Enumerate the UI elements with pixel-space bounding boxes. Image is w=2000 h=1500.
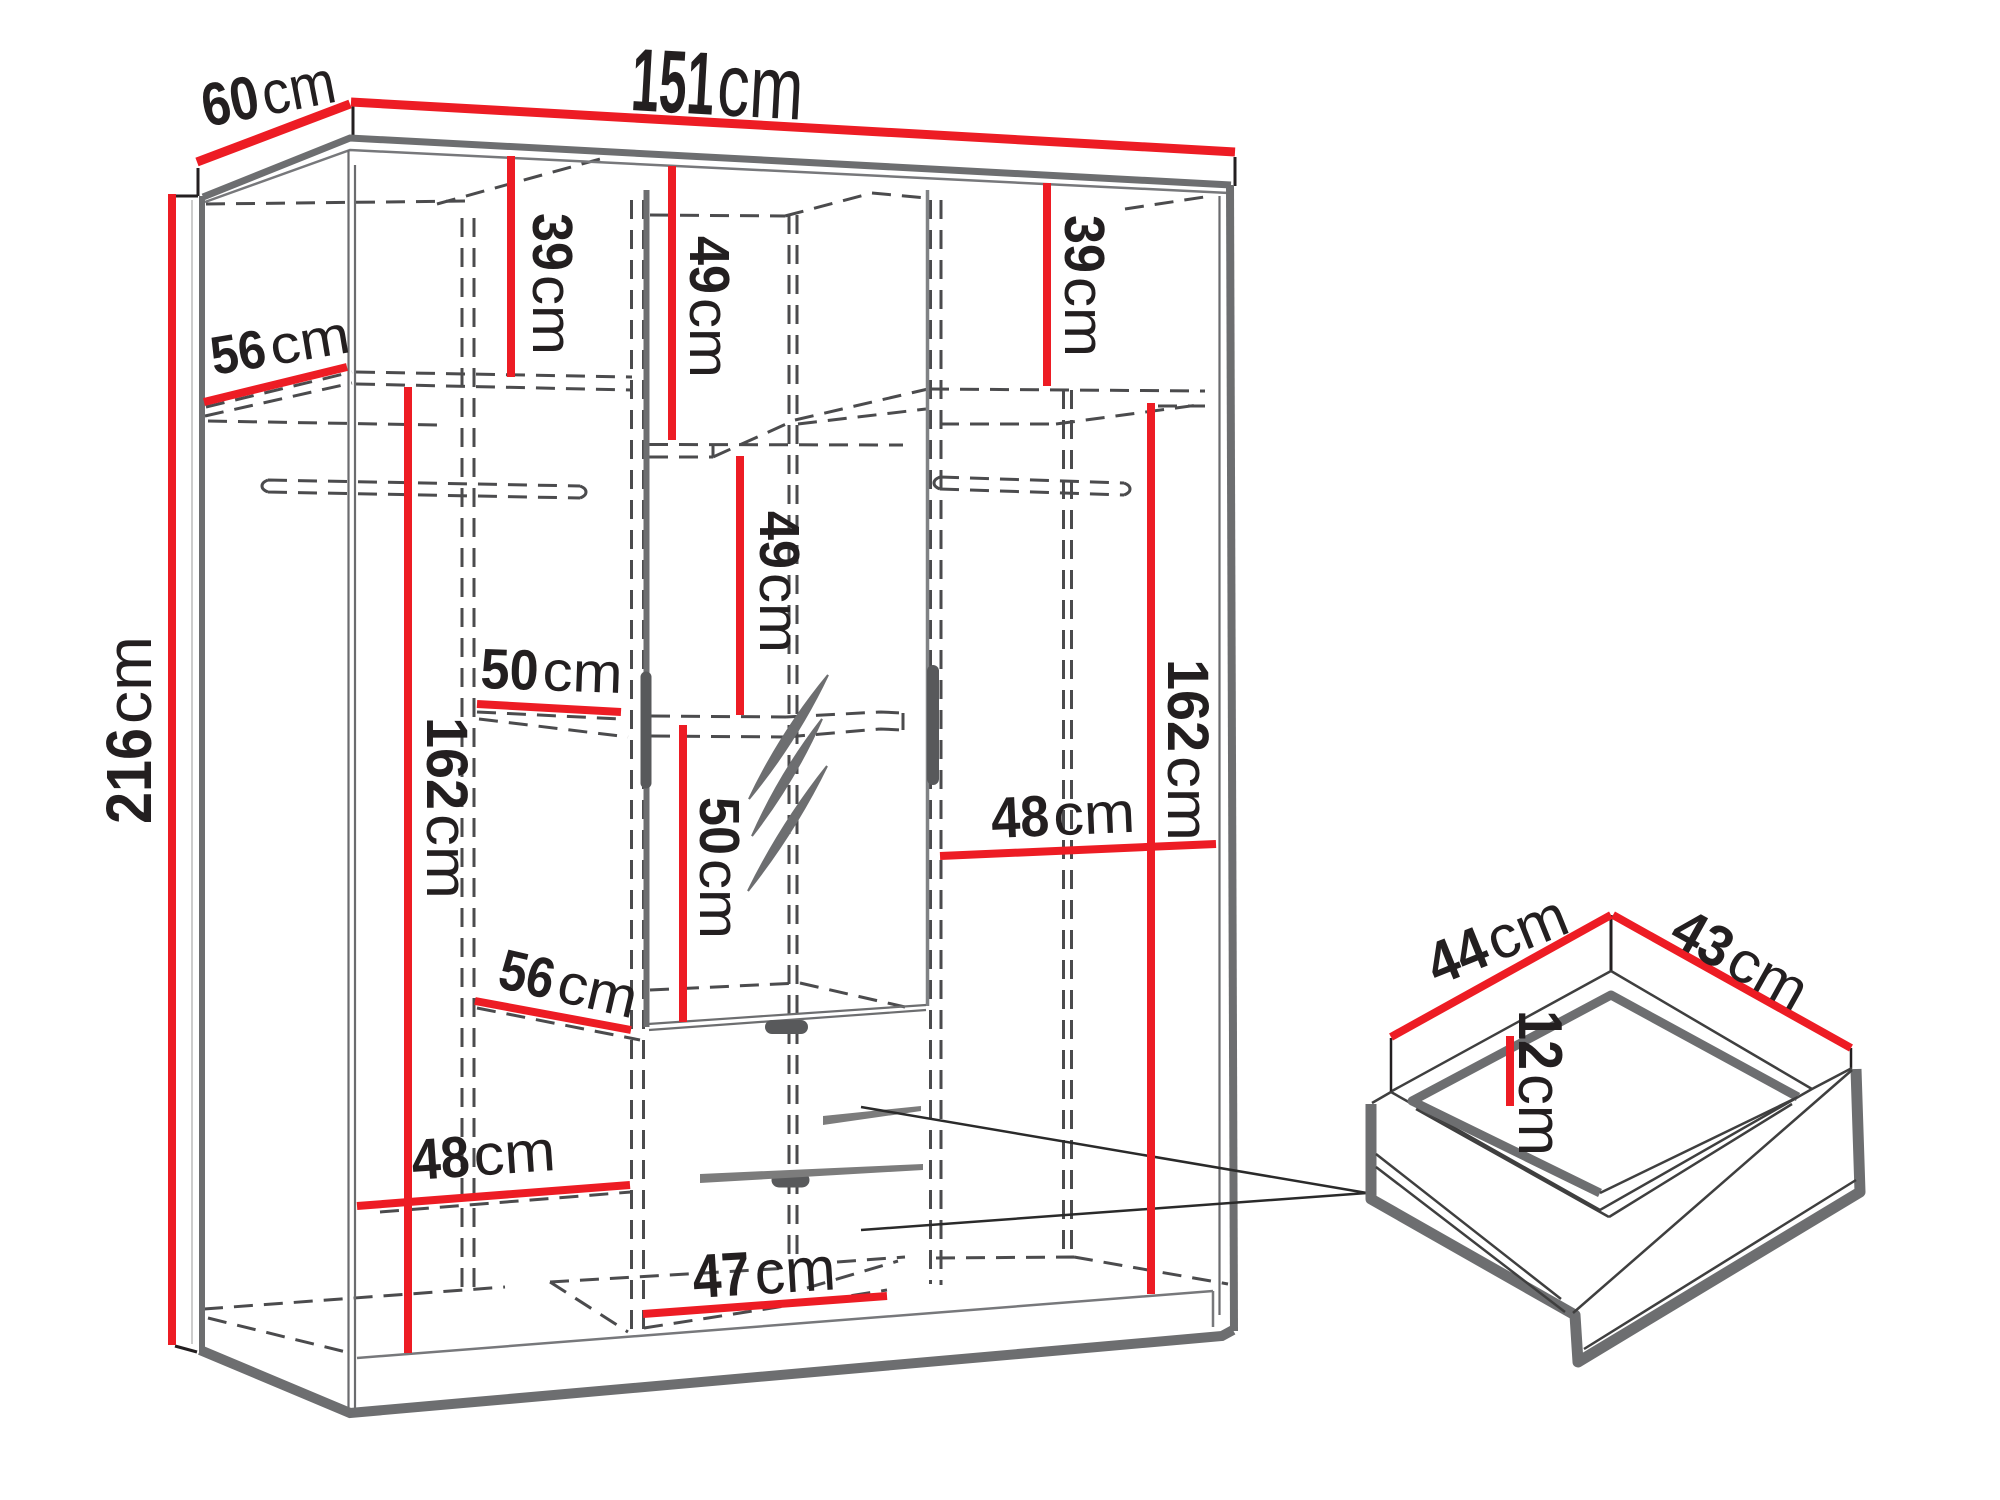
svg-text:cm: cm — [687, 859, 751, 939]
svg-text:cm: cm — [747, 573, 811, 653]
svg-text:162: 162 — [414, 717, 479, 810]
svg-text:cm: cm — [520, 275, 584, 355]
svg-text:cm: cm — [1155, 756, 1220, 841]
svg-text:39: 39 — [520, 213, 584, 271]
svg-text:39: 39 — [1052, 215, 1116, 273]
svg-text:cm: cm — [542, 639, 624, 706]
svg-text:48: 48 — [409, 1124, 471, 1193]
svg-text:12: 12 — [1505, 1010, 1574, 1070]
svg-text:47: 47 — [691, 1240, 752, 1312]
svg-text:cm: cm — [1052, 277, 1116, 357]
svg-text:cm: cm — [93, 636, 165, 724]
svg-text:cm: cm — [715, 34, 806, 139]
svg-text:50: 50 — [687, 797, 751, 855]
svg-text:cm: cm — [471, 1118, 557, 1189]
svg-text:50: 50 — [480, 637, 540, 703]
svg-text:cm: cm — [1505, 1074, 1574, 1156]
svg-text:cm: cm — [677, 298, 741, 378]
svg-text:49: 49 — [747, 511, 811, 569]
svg-text:151: 151 — [629, 29, 717, 133]
svg-text:162: 162 — [1155, 659, 1220, 752]
svg-text:cm: cm — [1052, 780, 1137, 849]
svg-text:cm: cm — [414, 814, 479, 899]
svg-text:cm: cm — [753, 1234, 838, 1308]
svg-text:49: 49 — [677, 236, 741, 294]
svg-text:216: 216 — [93, 728, 165, 824]
svg-text:cm: cm — [255, 47, 341, 128]
svg-text:48: 48 — [990, 784, 1051, 851]
svg-text:56: 56 — [206, 319, 270, 387]
